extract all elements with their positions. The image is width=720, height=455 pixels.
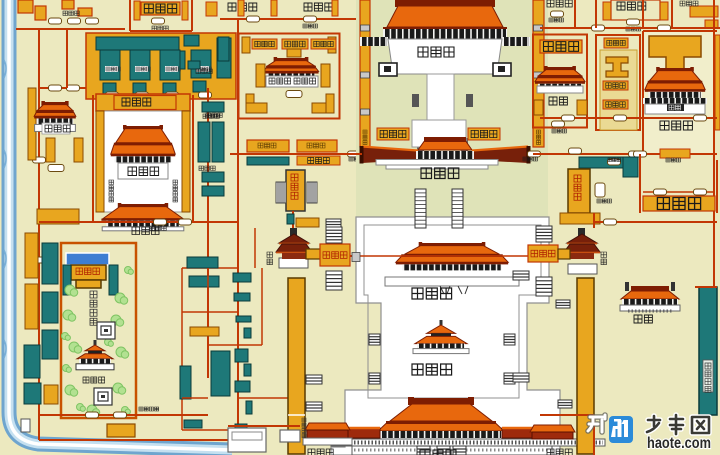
svg-text:haote.com: haote.com <box>647 435 711 452</box>
